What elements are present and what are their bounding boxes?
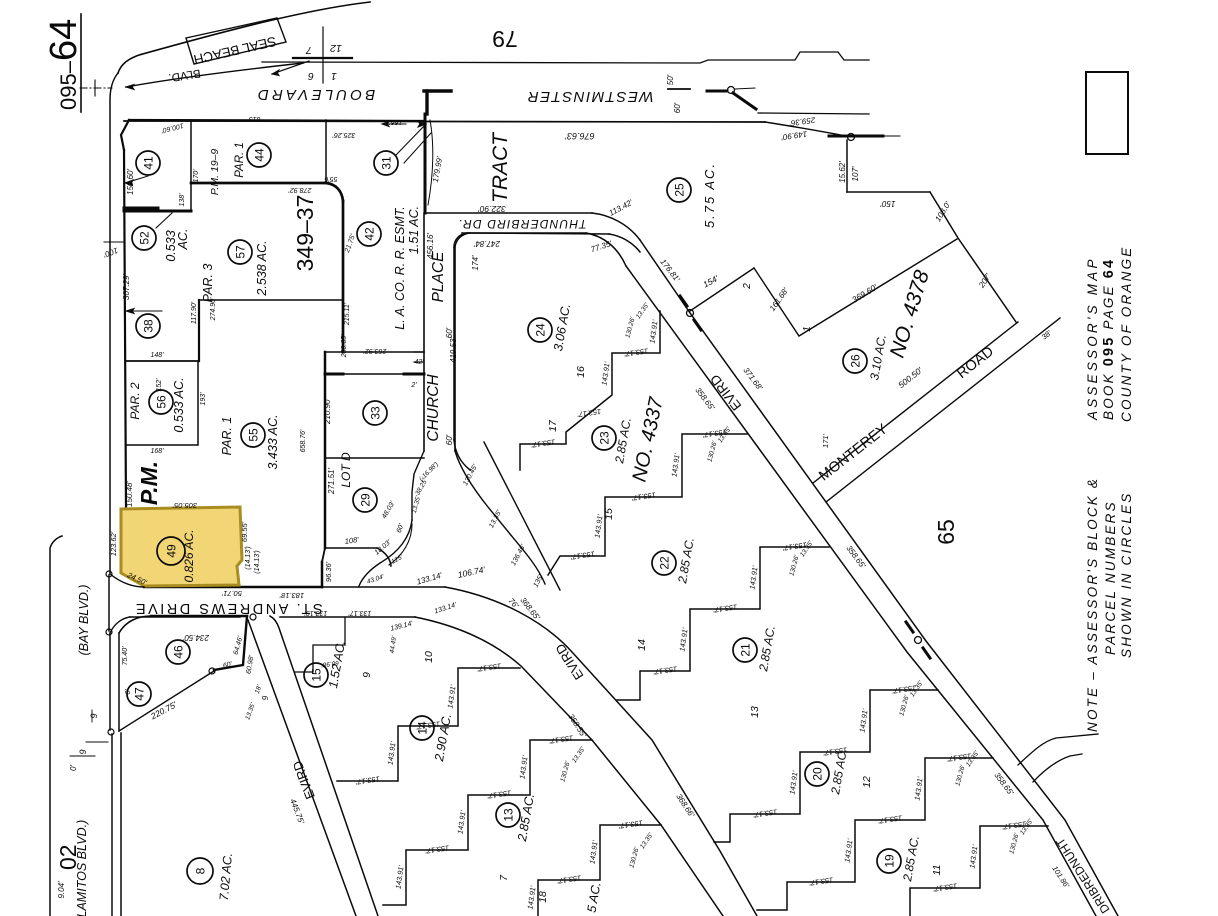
svg-text:41: 41 <box>142 156 156 170</box>
svg-text:47: 47 <box>133 687 147 701</box>
svg-text:17: 17 <box>547 419 559 432</box>
svg-text:55'6: 55'6 <box>324 175 337 182</box>
svg-text:P.M. 19–9: P.M. 19–9 <box>209 149 221 196</box>
svg-text:1: 1 <box>331 70 337 82</box>
svg-text:THUNDERBIRD DR.: THUNDERBIRD DR. <box>457 217 586 231</box>
svg-text:25: 25 <box>673 183 687 197</box>
svg-text:31: 31 <box>380 156 394 170</box>
svg-text:(14.13'): (14.13') <box>254 550 261 574</box>
svg-text:12: 12 <box>330 42 342 54</box>
svg-text:322.90': 322.90' <box>478 204 506 214</box>
svg-text:107': 107' <box>851 166 860 181</box>
svg-text:26: 26 <box>849 354 863 368</box>
svg-text:PAR. 3: PAR. 3 <box>201 264 215 303</box>
svg-text:9: 9 <box>89 713 99 718</box>
svg-text:75.40': 75.40' <box>122 646 129 666</box>
svg-text:6: 6 <box>308 70 314 82</box>
svg-text:247.84': 247.84' <box>474 239 501 248</box>
svg-text:23: 23 <box>598 431 612 445</box>
svg-text:BOOK 095 PAGE 64: BOOK 095 PAGE 64 <box>1101 258 1117 420</box>
svg-text:WESTMINSTER: WESTMINSTER <box>526 88 653 105</box>
svg-text:29: 29 <box>359 493 373 507</box>
svg-text:13: 13 <box>749 706 761 718</box>
svg-text:117.90': 117.90' <box>191 301 198 324</box>
svg-text:234.50': 234.50' <box>183 633 210 642</box>
svg-text:307.29': 307.29' <box>122 274 131 300</box>
svg-text:325.26': 325.26' <box>332 131 355 138</box>
svg-text:65: 65 <box>933 519 959 545</box>
svg-text:02: 02 <box>55 844 81 870</box>
svg-text:8: 8 <box>194 867 208 874</box>
svg-text:46: 46 <box>172 645 186 659</box>
svg-text:15: 15 <box>310 668 324 682</box>
svg-text:33: 33 <box>369 406 383 420</box>
svg-text:21: 21 <box>739 643 753 657</box>
svg-text:CHURCH: CHURCH <box>425 374 442 442</box>
svg-text:PAR. 2: PAR. 2 <box>128 382 142 419</box>
svg-text:0.533 AC.: 0.533 AC. <box>172 377 186 432</box>
svg-text:613': 613' <box>247 115 261 122</box>
svg-text:50.71': 50.71' <box>221 589 242 598</box>
svg-text:676.63': 676.63' <box>565 131 595 141</box>
svg-text:ASSESSOR'S MAP: ASSESSOR'S MAP <box>1085 256 1100 421</box>
svg-text:1: 1 <box>802 326 813 332</box>
svg-text:148': 148' <box>150 352 164 359</box>
svg-text:150.48': 150.48' <box>125 481 134 507</box>
svg-text:NOTE – ASSESSOR'S BLOCK &: NOTE – ASSESSOR'S BLOCK & <box>1085 477 1100 732</box>
svg-text:170': 170' <box>193 169 200 183</box>
svg-text:14: 14 <box>636 639 648 651</box>
svg-text:168': 168' <box>150 448 164 455</box>
svg-text:3.433 AC.: 3.433 AC. <box>266 414 280 469</box>
svg-text:AC.: AC. <box>176 229 190 251</box>
svg-text:19: 19 <box>883 854 897 868</box>
svg-text:44: 44 <box>253 148 267 162</box>
svg-text:9: 9 <box>361 672 373 678</box>
svg-text:280.65': 280.65' <box>341 334 348 358</box>
svg-text:123.62': 123.62' <box>109 531 118 556</box>
svg-text:210.90': 210.90' <box>323 398 332 425</box>
svg-text:79: 79 <box>492 26 518 52</box>
svg-text:60': 60' <box>673 102 682 113</box>
svg-text:69.55': 69.55' <box>240 521 249 542</box>
svg-text:13: 13 <box>502 808 516 822</box>
svg-text:(14.13'): (14.13') <box>245 546 252 570</box>
svg-text:L. A. CO. R. R. ESMT.: L. A. CO. R. R. ESMT. <box>393 206 407 329</box>
svg-text:16: 16 <box>575 366 587 378</box>
svg-text:PARCEL NUMBERS: PARCEL NUMBERS <box>1103 500 1118 655</box>
svg-text:20: 20 <box>811 767 825 781</box>
svg-text:274.90': 274.90' <box>210 297 217 321</box>
svg-text:419.53': 419.53' <box>449 337 458 363</box>
svg-text:49: 49 <box>165 544 179 558</box>
svg-text:9.04': 9.04' <box>57 881 66 899</box>
svg-text:278.92': 278.92' <box>288 186 312 193</box>
svg-text:133.19': 133.19' <box>304 609 327 616</box>
svg-text:PAR. 1: PAR. 1 <box>234 142 246 178</box>
svg-text:14: 14 <box>416 721 430 735</box>
svg-text:PAR. 1: PAR. 1 <box>220 417 234 456</box>
svg-text:9: 9 <box>78 749 88 754</box>
svg-text:LOT D: LOT D <box>339 452 353 488</box>
svg-text:15.62': 15.62' <box>838 161 847 183</box>
svg-text:2.538 AC.: 2.538 AC. <box>255 240 269 296</box>
svg-text:174': 174' <box>471 255 480 270</box>
svg-text:12: 12 <box>861 776 873 788</box>
svg-text:52: 52 <box>138 231 152 245</box>
svg-text:P.M.: P.M. <box>136 461 162 505</box>
svg-text:215.11': 215.11' <box>344 302 351 326</box>
svg-text:24: 24 <box>534 323 548 337</box>
svg-text:ST. ANDREWS DRIVE: ST. ANDREWS DRIVE <box>133 600 322 616</box>
svg-text:150': 150' <box>880 199 895 208</box>
svg-text:60': 60' <box>445 327 454 338</box>
svg-text:57: 57 <box>234 245 248 259</box>
svg-text:60': 60' <box>445 434 454 445</box>
svg-text:2: 2 <box>742 283 753 290</box>
svg-text:0': 0' <box>69 765 78 771</box>
svg-text:TRACT: TRACT <box>489 131 512 203</box>
svg-text:349–37: 349–37 <box>292 195 318 272</box>
svg-text:PLACE: PLACE <box>430 251 447 302</box>
svg-text:96.36': 96.36' <box>324 561 333 582</box>
svg-text:171': 171' <box>821 433 830 448</box>
svg-text:50': 50' <box>666 74 675 85</box>
svg-text:BOULEVARD: BOULEVARD <box>255 86 376 103</box>
svg-text:2': 2' <box>410 382 417 389</box>
svg-text:18: 18 <box>537 891 549 903</box>
svg-text:10: 10 <box>423 651 435 663</box>
svg-text:42: 42 <box>363 227 377 241</box>
svg-text:271.51': 271.51' <box>327 468 336 495</box>
svg-text:193': 193' <box>200 392 207 406</box>
svg-text:15: 15 <box>603 508 615 520</box>
svg-text:22: 22 <box>658 556 672 570</box>
svg-text:138': 138' <box>179 193 186 207</box>
svg-text:(BAY BLVD.): (BAY BLVD.) <box>77 584 91 655</box>
svg-text:9: 9 <box>261 695 270 700</box>
svg-text:263.92': 263.92' <box>363 347 387 354</box>
svg-text:55: 55 <box>247 428 261 442</box>
svg-text:COUNTY OF ORANGE: COUNTY OF ORANGE <box>1119 246 1134 422</box>
svg-text:305.05': 305.05' <box>172 501 197 510</box>
svg-text:SHOWN IN CIRCLES: SHOWN IN CIRCLES <box>1119 492 1134 658</box>
svg-text:5.75 AC.: 5.75 AC. <box>702 162 717 228</box>
svg-text:38: 38 <box>142 319 156 333</box>
svg-text:1.51 AC.: 1.51 AC. <box>407 206 421 254</box>
svg-text:56: 56 <box>155 395 169 409</box>
svg-text:658.76': 658.76' <box>300 429 307 452</box>
svg-text:11: 11 <box>931 865 943 876</box>
svg-text:183.18': 183.18' <box>279 591 304 600</box>
svg-text:133.17': 133.17' <box>348 609 371 616</box>
